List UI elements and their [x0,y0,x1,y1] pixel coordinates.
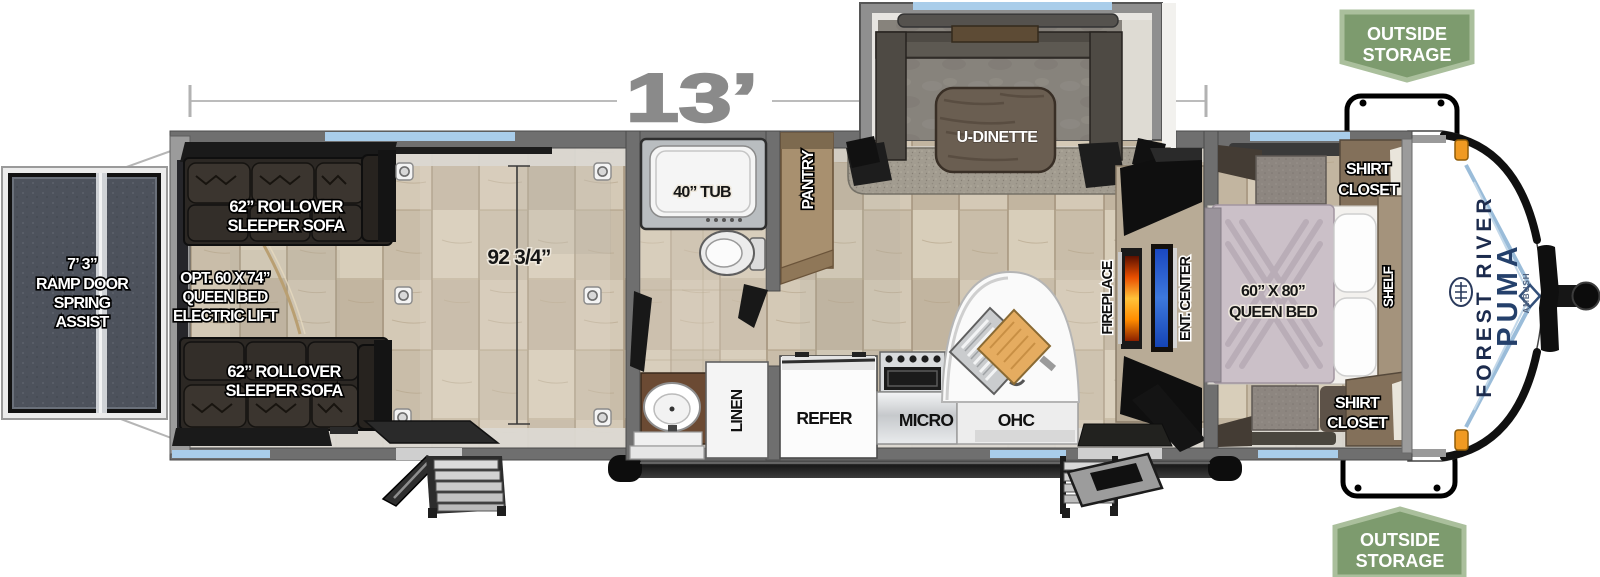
svg-text:AMBUSH: AMBUSH [1522,272,1531,313]
svg-text:REFER: REFER [796,408,852,428]
svg-text:OUTSIDE: OUTSIDE [1360,530,1440,550]
svg-text:62” ROLLOVER: 62” ROLLOVER [229,198,343,216]
svg-text:ELECTRIC LIFT: ELECTRIC LIFT [173,308,278,325]
svg-text:PUMA: PUMA [1492,241,1524,346]
svg-text:13’: 13’ [626,60,758,136]
svg-text:SHIRT: SHIRT [1335,395,1380,412]
svg-text:QUEEN BED: QUEEN BED [183,289,269,306]
svg-text:SPRING: SPRING [54,295,111,312]
svg-text:ASSIST: ASSIST [56,314,110,331]
svg-text:SLEEPER SOFA: SLEEPER SOFA [226,382,344,400]
svg-text:60” X 80”: 60” X 80” [1241,283,1305,300]
svg-text:92 3/4”: 92 3/4” [487,246,550,269]
svg-text:OPT. 60 X 74”: OPT. 60 X 74” [180,270,270,287]
svg-text:PANTRY: PANTRY [800,149,817,209]
svg-text:SHIRT: SHIRT [1346,161,1391,178]
svg-text:STORAGE: STORAGE [1363,45,1452,65]
svg-text:ENT. CENTER: ENT. CENTER [1178,255,1194,341]
svg-text:OHC: OHC [998,410,1036,430]
svg-text:STORAGE: STORAGE [1356,551,1445,571]
svg-text:MICRO: MICRO [899,410,954,430]
svg-text:62” ROLLOVER: 62” ROLLOVER [227,363,341,381]
svg-text:SHELF: SHELF [1381,266,1396,307]
svg-text:LINEN: LINEN [729,389,746,432]
svg-text:FIREPLACE: FIREPLACE [1100,260,1116,335]
svg-text:RAMP DOOR: RAMP DOOR [36,276,129,293]
svg-text:SLEEPER SOFA: SLEEPER SOFA [228,217,346,235]
svg-text:CLOSET: CLOSET [1327,415,1388,432]
svg-text:QUEEN BED: QUEEN BED [1229,304,1317,321]
svg-text:U-DINETTE: U-DINETTE [957,129,1039,146]
svg-text:OUTSIDE: OUTSIDE [1367,24,1447,44]
svg-text:40” TUB: 40” TUB [673,184,731,201]
svg-text:7’ 3”: 7’ 3” [67,256,97,273]
